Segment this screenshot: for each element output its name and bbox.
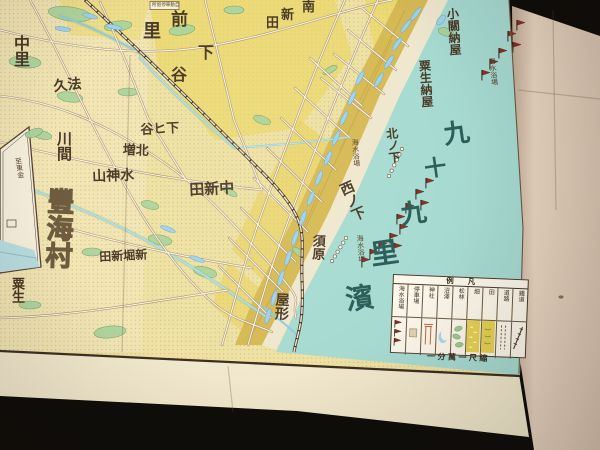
beach-hut-marker: [387, 174, 390, 177]
beach-hut-marker: [400, 147, 403, 150]
beach-hut-marker: [344, 236, 347, 239]
legend-label-8: 鐵道: [512, 288, 527, 322]
legend-symbol-road-icon: [496, 321, 511, 359]
legend-symbol-marsh-icon: [436, 318, 451, 356]
bus-stop-box: [150, 2, 179, 10]
legend-symbol-torii-icon: [421, 318, 436, 356]
legend-columns: 海水浴場停車場神社沼澤松林畑田道路鐵道: [391, 284, 528, 359]
legend-label-5: 畑: [467, 287, 482, 321]
legend-label-7: 道路: [497, 288, 512, 322]
beach-hut-marker: [339, 246, 342, 249]
beach-hut-marker: [342, 241, 345, 244]
legend-col-rail: 鐵道: [511, 288, 528, 359]
legend-label-0: 海水浴場: [392, 284, 407, 318]
legend-box: 凡例 海水浴場停車場神社沼澤松林畑田道路鐵道: [390, 274, 529, 358]
legend-label-2: 神社: [422, 285, 437, 319]
beach-hut-marker: [330, 259, 333, 262]
map-artwork: [0, 0, 600, 450]
beach-hut-marker: [336, 250, 339, 253]
beach-hut-marker: [390, 169, 393, 172]
beach-hut-marker: [333, 255, 336, 258]
blank-paper-margin: [512, 6, 600, 450]
legend-label-4: 松林: [452, 286, 467, 320]
legend-symbol-station-icon: [406, 317, 421, 355]
beach-hut-marker: [395, 158, 398, 161]
beach-hut-marker: [393, 164, 396, 167]
legend-label-3: 沼澤: [437, 285, 452, 319]
legend-label-6: 田: [482, 287, 497, 321]
legend-symbol-flags-icon: [391, 317, 406, 355]
beach-hut-marker: [398, 153, 401, 156]
legend-symbol-rail-icon: [511, 321, 526, 359]
legend-label-1: 停車場: [407, 284, 422, 318]
scale-note: 縮尺一萬分一: [427, 351, 490, 364]
map-photo: 中里川間豐海村粟生屋形須原西ノ下北ノ下粟生納屋小關納屋海水浴場海水浴場海水浴場至…: [0, 0, 600, 450]
